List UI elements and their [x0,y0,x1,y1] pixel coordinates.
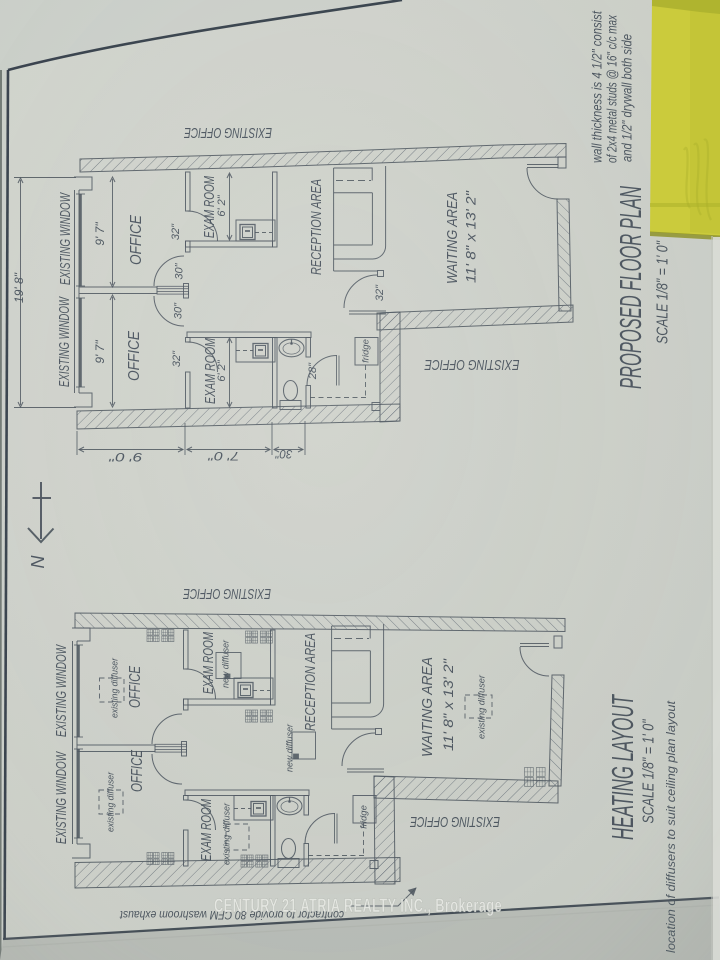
svg-text:CENTURY 21 ATRIA REALTY INC.,: CENTURY 21 ATRIA REALTY INC., Brokerage [214,896,502,917]
